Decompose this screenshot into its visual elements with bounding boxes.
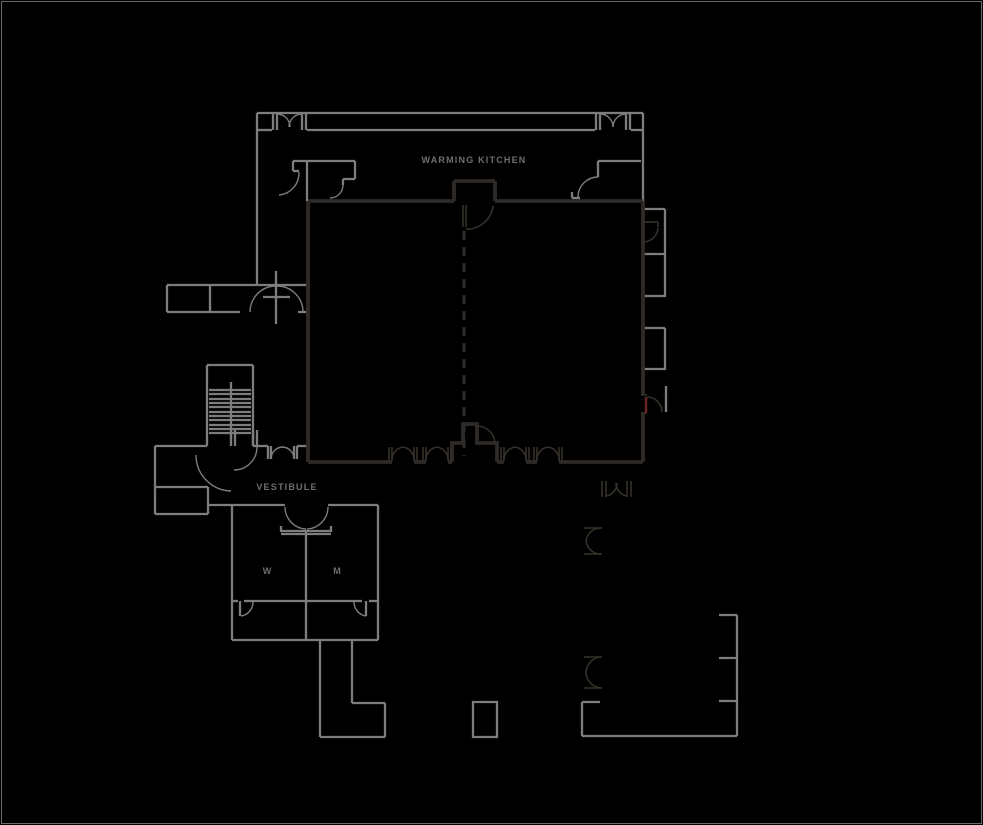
floorplan-svg: WARMING KITCHENVESTIBULEWM [0,0,983,825]
floorplan-canvas: WARMING KITCHENVESTIBULEWM [0,0,983,825]
label-vestibule: VESTIBULE [256,482,317,492]
label-room-m: M [333,566,341,576]
label-warming-kitchen: WARMING KITCHEN [422,155,527,165]
label-room-w: W [263,566,272,576]
